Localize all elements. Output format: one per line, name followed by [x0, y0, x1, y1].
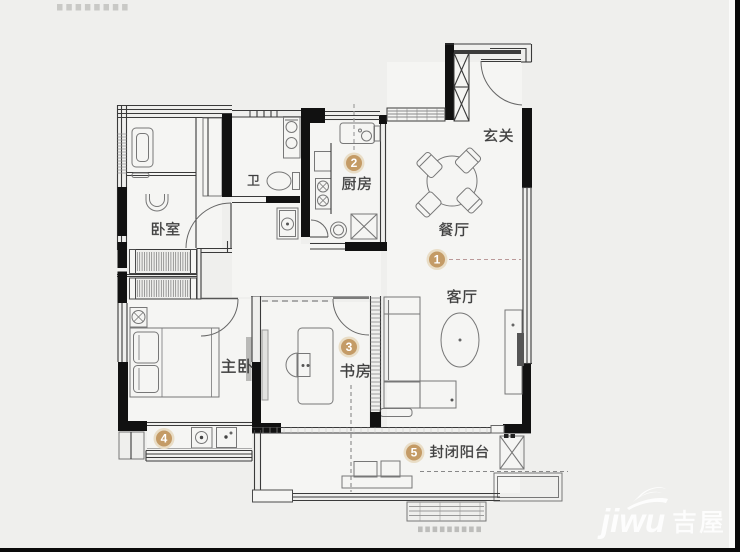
svg-text:jiwu: jiwu: [597, 502, 665, 539]
svg-text:3: 3: [346, 340, 353, 354]
svg-text:4: 4: [161, 432, 168, 446]
svg-text:5: 5: [411, 446, 418, 460]
svg-text:2: 2: [351, 156, 358, 170]
svg-text:1: 1: [434, 253, 441, 267]
